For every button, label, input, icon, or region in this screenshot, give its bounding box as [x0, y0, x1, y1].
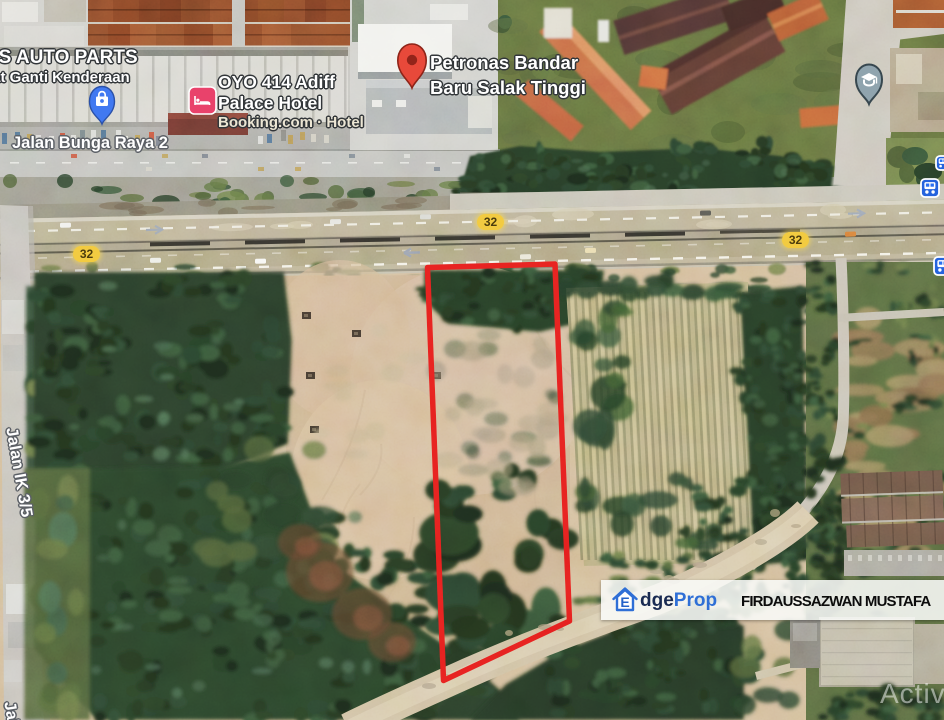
svg-text:E: E — [620, 594, 629, 610]
